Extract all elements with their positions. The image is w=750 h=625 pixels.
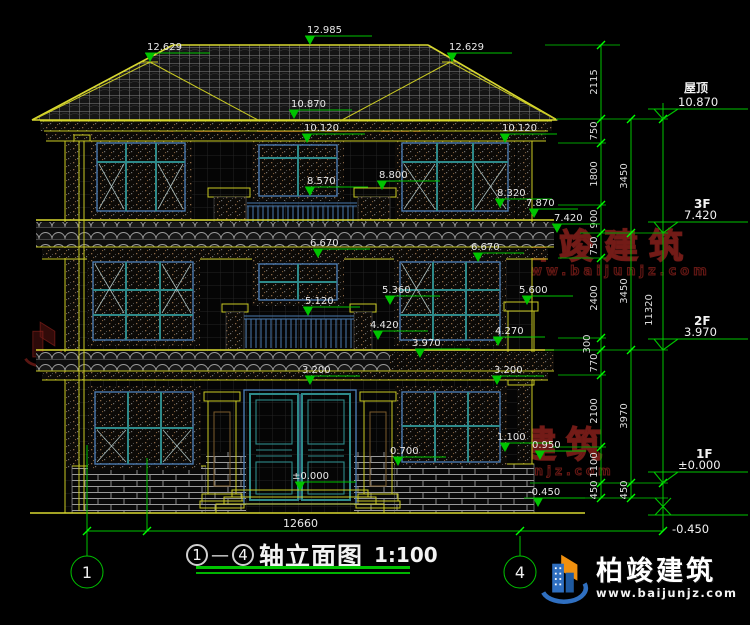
elev-text: -0.450 (528, 487, 560, 498)
cad-elevation-sheet: 柏竣建筑 www.baijunjz.com 柏竣建筑 www.baijunjz.… (0, 0, 750, 625)
elev-text: 5.600 (519, 285, 548, 296)
level-value: 3.970 (684, 325, 717, 339)
elev-text: 7.420 (554, 213, 583, 224)
cornice-roof (40, 121, 552, 141)
elev-text: 8.800 (379, 170, 408, 181)
company-logo-icon (536, 551, 590, 607)
dimension-chain-col1: 2115 750 1800 900 750 2400 300 770 2100 … (582, 69, 600, 499)
elev-text: 0.950 (532, 440, 561, 451)
dim-text: 3450 (619, 163, 630, 188)
level-value: 7.420 (684, 208, 717, 222)
level-value: ±0.000 (678, 458, 721, 472)
dim-text: 450 (619, 480, 630, 499)
elev-text: 10.870 (291, 99, 326, 110)
dim-text: 3450 (619, 278, 630, 303)
dim-text: 2100 (589, 398, 600, 423)
company-website: www.baijunjz.com (596, 588, 737, 600)
total-width-text: 12660 (283, 517, 318, 530)
dim-text: 770 (589, 353, 600, 372)
title-dash: — (211, 545, 229, 566)
elev-text: 10.120 (304, 123, 339, 134)
level-value: 10.870 (678, 95, 718, 109)
elev-text: 3.200 (494, 365, 523, 376)
title-underline (196, 572, 410, 574)
elev-text: 3.200 (302, 365, 331, 376)
elev-text: 7.870 (526, 198, 555, 209)
elev-text: 6.670 (310, 238, 339, 249)
dim-text: 300 (582, 334, 593, 353)
dim-text: 750 (589, 121, 600, 140)
elev-text: 6.670 (471, 242, 500, 253)
company-name: 柏竣建筑 (596, 558, 737, 585)
title-axis-circle-right: 4 (232, 544, 254, 566)
dim-text: 11320 (644, 294, 655, 326)
dim-text: 1800 (589, 161, 600, 186)
elevation-drawing: 2115 750 1800 900 750 2400 300 770 2100 … (0, 0, 750, 625)
window-2f-right (394, 256, 506, 346)
elev-text: 5.360 (382, 285, 411, 296)
window-3f-center (252, 139, 344, 201)
title-scale: 1:100 (374, 543, 438, 567)
elev-text: 1.100 (497, 432, 526, 443)
dimension-chain-col2: 3450 3450 3970 450 (619, 163, 630, 499)
elev-text: ±0.000 (292, 471, 329, 482)
dim-text: 2115 (589, 69, 600, 94)
elev-text: 0.700 (390, 446, 419, 457)
window-3f-right (395, 137, 515, 219)
dim-text: 450 (589, 480, 600, 499)
dim-text: 3970 (619, 403, 630, 428)
elev-text: 12.629 (147, 42, 182, 53)
canopy-band-1f (36, 350, 554, 380)
dim-text: 750 (589, 236, 600, 255)
elev-text: 8.320 (497, 188, 526, 199)
elev-text: 4.270 (495, 326, 524, 337)
company-logo: 柏竣建筑 www.baijunjz.com (536, 551, 737, 607)
window-3f-left (90, 137, 192, 219)
axis-number-left: 1 (82, 563, 92, 582)
level-name: 屋顶 (684, 81, 708, 95)
elev-text: 12.985 (307, 25, 342, 36)
dim-text: 2400 (589, 285, 600, 310)
window-1f-left (88, 386, 201, 470)
elev-text: 8.570 (307, 176, 336, 187)
level-value: -0.450 (672, 522, 709, 536)
window-2f-left (87, 256, 200, 346)
title-axis-circle-left: 1 (186, 544, 208, 566)
dim-text: 900 (589, 209, 600, 228)
dim-text: 1100 (589, 452, 600, 477)
title-underline (196, 566, 410, 569)
elev-text: 12.629 (449, 42, 484, 53)
elev-text: 3.970 (412, 338, 441, 349)
elev-text: 10.120 (502, 123, 537, 134)
elev-text: 4.420 (370, 320, 399, 331)
dimension-chain-col3: 11320 (644, 294, 655, 326)
axis-number-right: 4 (515, 563, 525, 582)
elev-text: 5.120 (305, 296, 334, 307)
